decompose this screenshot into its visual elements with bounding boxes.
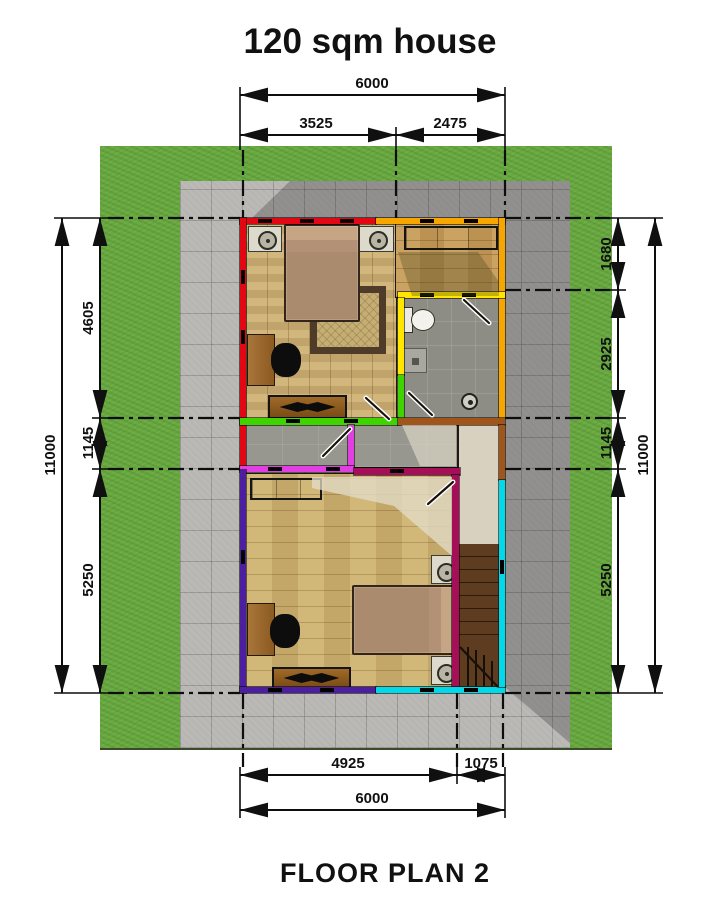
dim-bottom-seg2: 1075: [464, 755, 497, 772]
dimension-overlay: 6000 3525 2475 4925 1075 6000 11000 4605…: [0, 0, 718, 915]
dim-right-overall: 11000: [635, 435, 652, 476]
bedroom2-wall-shadow: [312, 477, 452, 556]
dim-left-seg1: 4605: [80, 301, 97, 334]
dim-left-overall: 11000: [42, 435, 59, 476]
dim-bottom-seg1: 4925: [331, 755, 364, 772]
dim-right-seg3: 1145: [598, 427, 615, 460]
stair-cut-lines: [460, 647, 498, 687]
dim-top-seg1: 3525: [299, 115, 332, 132]
dim-right-seg1: 1680: [598, 237, 615, 270]
dim-top-overall: 6000: [355, 75, 388, 92]
dim-left-seg3: 5250: [80, 563, 97, 596]
extension-ticks: [54, 87, 663, 818]
extension-centerlines: [108, 150, 610, 767]
floor-plan-sheet: 120 sqm house: [0, 0, 718, 915]
plan-caption: FLOOR PLAN 2: [240, 858, 530, 889]
kitchen-shadow: [398, 252, 499, 296]
dim-right-seg4: 5250: [598, 563, 615, 596]
dim-top-seg2: 2475: [433, 115, 466, 132]
dim-right-seg2: 2925: [598, 337, 615, 370]
dim-left-seg2: 1145: [80, 427, 97, 460]
dim-bottom-overall: 6000: [355, 790, 388, 807]
door-leaves: [323, 300, 489, 504]
dimension-lines: [62, 95, 655, 810]
hallway-wall-shadow: [402, 425, 456, 466]
